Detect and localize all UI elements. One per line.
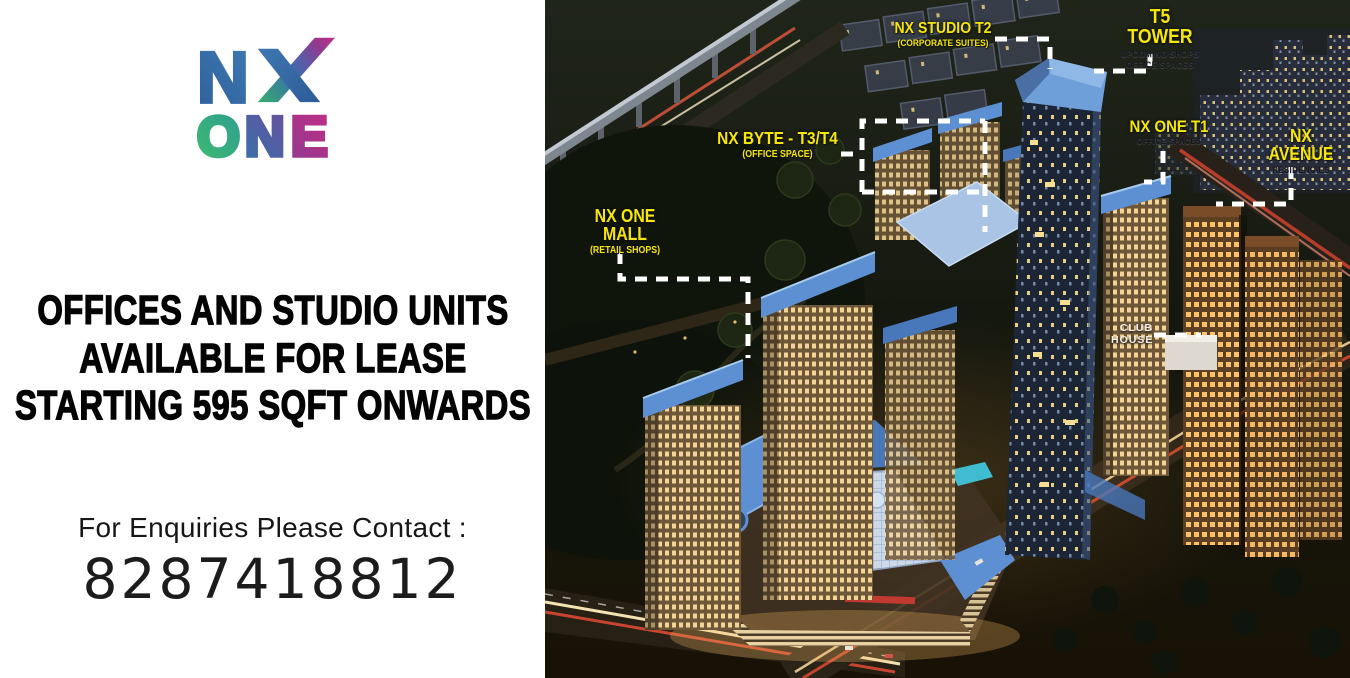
label-subtitle: UPCOMING SHOPS	[1116, 50, 1204, 59]
logo-letter-n2: N	[245, 105, 285, 162]
contact-label: For Enquiries Please Contact :	[0, 512, 545, 544]
label-subtitle: OFFICE SPACES	[1129, 137, 1210, 146]
label-nx-avenue: NX AVENUE RESIDENCIES	[1257, 127, 1345, 175]
label-title: NX ONE MALL	[572, 207, 678, 244]
label-nx-one-mall: NX ONE MALL (RETAIL SHOPS)	[572, 207, 678, 256]
label-t5-tower: T5 TOWER UPCOMING SHOPS OFFICE SPACES	[1116, 7, 1204, 70]
label-line: HOUSE	[1111, 334, 1153, 346]
label-line: CLUB	[1111, 322, 1153, 334]
phone-number: 8287418812	[0, 547, 545, 611]
label-title: NX ONE T1	[1129, 118, 1210, 135]
label-club-house: CLUB HOUSE	[1111, 322, 1153, 346]
label-subtitle: (RETAIL SHOPS)	[572, 246, 678, 256]
logo-letter-e: E	[291, 105, 328, 162]
label-title: T5 TOWER	[1116, 7, 1204, 48]
aerial-render: NX STUDIO T2 (CORPORATE SUITES) T5 TOWER…	[545, 0, 1350, 678]
logo-letter-o: O	[197, 105, 240, 162]
label-title: NX STUDIO T2	[889, 21, 996, 37]
label-subtitle: (CORPORATE SUITES)	[889, 39, 996, 49]
club-house-building	[1165, 335, 1217, 370]
headline-line-2: AVAILABLE FOR LEASE	[0, 335, 553, 383]
render-artwork	[545, 0, 1350, 678]
label-title: NX AVENUE	[1257, 127, 1345, 164]
label-nx-studio-t2: NX STUDIO T2 (CORPORATE SUITES)	[889, 21, 996, 49]
nx-one-logo: N ONE	[197, 34, 335, 162]
headline-line-1: OFFICES AND STUDIO UNITS	[0, 287, 553, 335]
flyer: N ONE OFFICES AND STUDIO UNITS AVAILABLE…	[0, 0, 1350, 678]
left-panel: N ONE OFFICES AND STUDIO UNITS AVAILABLE…	[0, 0, 545, 678]
headline-line-3: STARTING 595 SQFT ONWARDS	[0, 382, 553, 430]
logo-one-row: ONE	[197, 105, 328, 162]
label-subtitle: (OFFICE SPACE)	[714, 150, 842, 160]
label-subtitle: RESIDENCIES	[1257, 166, 1345, 175]
headline: OFFICES AND STUDIO UNITS AVAILABLE FOR L…	[0, 287, 553, 430]
label-nx-one-t1: NX ONE T1 OFFICE SPACES	[1129, 118, 1210, 146]
label-title: NX BYTE - T3/T4	[714, 130, 842, 148]
label-nx-byte: NX BYTE - T3/T4 (OFFICE SPACE)	[714, 130, 842, 160]
label-subtitle: OFFICE SPACES	[1116, 61, 1204, 70]
